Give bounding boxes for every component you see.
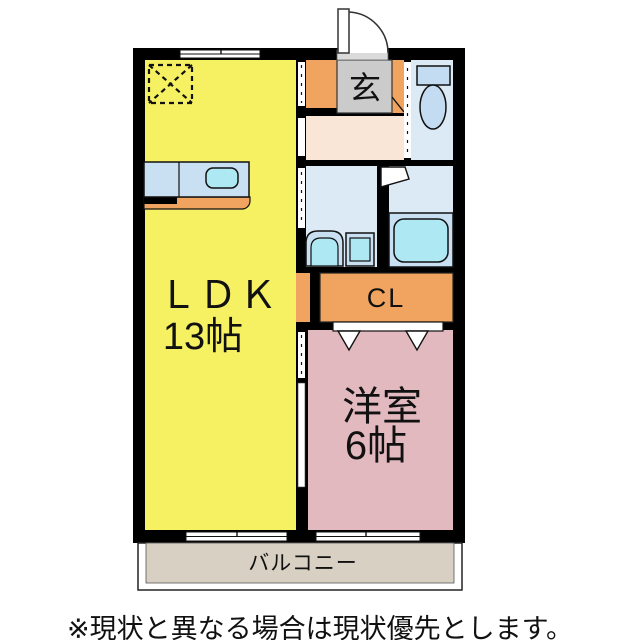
floorplan-page: ＬＤＫ 13帖 玄 [0, 0, 640, 640]
floorplan: ＬＤＫ 13帖 玄 [0, 0, 640, 640]
entrance-closet-door [298, 62, 305, 106]
washroom-door [298, 168, 305, 228]
western-room-balcony-window-icon [316, 532, 420, 541]
ldk-balcony-window-icon [186, 532, 287, 541]
kitchen-counter-notch [144, 197, 177, 204]
entrance-label: 玄 [349, 70, 381, 106]
washroom [306, 166, 377, 267]
toilet-room [404, 60, 453, 160]
closet-side-strip [296, 273, 310, 322]
closet-label: CL [367, 283, 406, 313]
room-ldk: ＬＤＫ 13帖 [145, 60, 296, 530]
ldk-top-window-icon [180, 50, 260, 58]
entrance-area: 玄 [306, 9, 404, 116]
balcony-label: バルコニー [248, 552, 358, 575]
closet-cl: CL [296, 273, 453, 322]
western-room-label: 洋室 [342, 385, 422, 429]
toilet-bowl-icon [420, 85, 446, 129]
ldk-label: ＬＤＫ [159, 275, 279, 317]
toilet-door [404, 62, 411, 158]
western-room-size-label: 6帖 [345, 424, 407, 468]
washing-machine-icon [346, 233, 374, 266]
ldk-size-label: 13帖 [163, 316, 243, 358]
entrance-door-swing-icon [338, 9, 388, 53]
kitchen-counter-icon [144, 162, 250, 209]
bathroom-sink-icon [306, 231, 343, 266]
caption-note: ※現状と異なる場合は現状優先とします。 [0, 607, 640, 640]
hallway-door [298, 118, 305, 156]
balcony: バルコニー [138, 543, 462, 590]
bathroom [381, 166, 453, 267]
hallway-floor [306, 116, 404, 160]
room-western: 洋室 6帖 [308, 322, 453, 530]
entrance-cabinet-left [306, 60, 337, 108]
western-room-sliding-door [298, 332, 305, 487]
entrance-wall-stub [306, 108, 337, 116]
kitchen-sink-icon [206, 168, 238, 188]
toilet-tank-icon [417, 66, 450, 85]
bathtub-icon [394, 219, 448, 262]
